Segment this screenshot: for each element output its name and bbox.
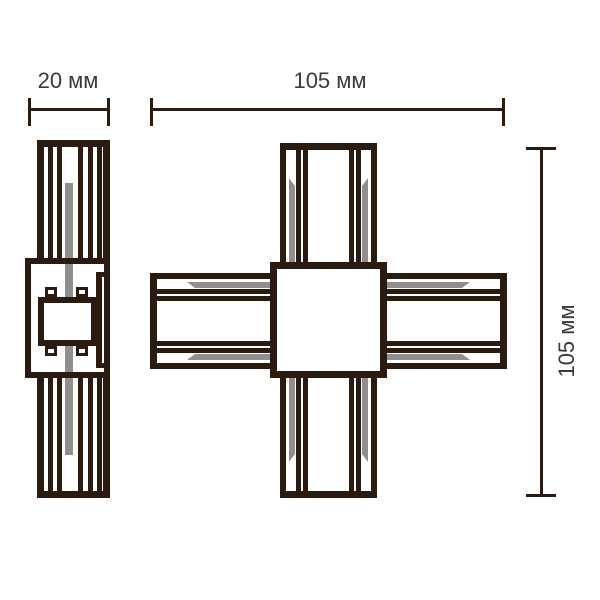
- dimension-line: [150, 108, 505, 111]
- dimension-105mm-width-label: 105 мм: [293, 68, 366, 94]
- dimension-tick-right: [502, 98, 505, 126]
- conductor-line: [303, 143, 308, 262]
- track-edge: [387, 363, 507, 369]
- conductor-line: [48, 140, 53, 262]
- conductor-line: [387, 341, 507, 346]
- gray-insert: [187, 282, 270, 288]
- track-end-cap: [280, 491, 377, 498]
- body-step-jog-bottom: [96, 363, 110, 368]
- track-edge: [371, 143, 377, 262]
- conductor-line: [356, 143, 361, 262]
- conductor-line: [303, 378, 308, 498]
- conductor-line: [57, 378, 62, 498]
- gray-insert: [289, 178, 295, 262]
- conductor-line: [349, 143, 354, 262]
- conductor-line: [88, 378, 93, 498]
- dimension-line: [28, 108, 110, 111]
- track-edge: [103, 140, 110, 262]
- side-track-lower: [37, 378, 110, 498]
- junction-box: [270, 262, 387, 378]
- gray-insert: [362, 378, 368, 462]
- latch-tab-bottom-right: [76, 346, 88, 356]
- conductor-line: [97, 140, 102, 262]
- gray-insert: [187, 354, 270, 360]
- track-end-cap: [280, 143, 377, 150]
- dimension-tick-top: [526, 147, 556, 150]
- track-edge: [37, 140, 44, 262]
- track-edge: [103, 378, 110, 498]
- track-end-cap: [150, 273, 157, 369]
- conductor-line: [387, 289, 507, 294]
- technical-drawing: 20 мм 105 мм 105 мм: [0, 0, 600, 600]
- latch-tab-top-left: [45, 287, 57, 297]
- track-edge: [150, 363, 270, 369]
- arm-top: [280, 143, 377, 262]
- conductor-line: [387, 348, 507, 353]
- gray-insert: [289, 378, 295, 462]
- latch-block: [38, 297, 97, 346]
- conductor-line: [78, 140, 83, 262]
- conductor-line: [97, 378, 102, 498]
- conductor-line: [356, 378, 361, 498]
- track-edge: [371, 378, 377, 498]
- track-edge: [37, 378, 44, 498]
- track-edge: [280, 143, 286, 262]
- conductor-line: [150, 296, 270, 301]
- gray-insert: [387, 282, 470, 288]
- conductor-line: [57, 140, 62, 262]
- gray-insert: [362, 178, 368, 262]
- side-track-upper: [37, 140, 110, 262]
- track-edge: [280, 378, 286, 498]
- latch-tab-bottom-left: [45, 346, 57, 356]
- conductor-line: [296, 378, 301, 498]
- body-step-jog-top: [96, 272, 110, 277]
- gray-insert: [387, 354, 470, 360]
- track-end-cap: [500, 273, 507, 369]
- conductor-line: [48, 378, 53, 498]
- conductor-line: [296, 143, 301, 262]
- track-end-cap: [37, 491, 110, 498]
- conductor-line: [88, 140, 93, 262]
- conductor-line: [150, 289, 270, 294]
- conductor-line: [150, 341, 270, 346]
- arm-left: [150, 273, 270, 369]
- conductor-line: [349, 378, 354, 498]
- dimension-line: [540, 147, 543, 497]
- latch-tab-top-right: [76, 287, 88, 297]
- dimension-tick-left: [150, 98, 153, 126]
- dimension-105mm-height-label: 105 мм: [554, 304, 580, 377]
- dimension-tick-left: [28, 98, 31, 126]
- dimension-tick-bottom: [526, 494, 556, 497]
- arm-bottom: [280, 378, 377, 498]
- conductor-line: [150, 348, 270, 353]
- arm-right: [387, 273, 507, 369]
- track-edge: [387, 273, 507, 279]
- track-edge: [150, 273, 270, 279]
- conductor-line: [387, 296, 507, 301]
- dimension-20mm-label: 20 мм: [38, 68, 99, 94]
- dimension-tick-right: [107, 98, 110, 126]
- conductor-line: [78, 378, 83, 498]
